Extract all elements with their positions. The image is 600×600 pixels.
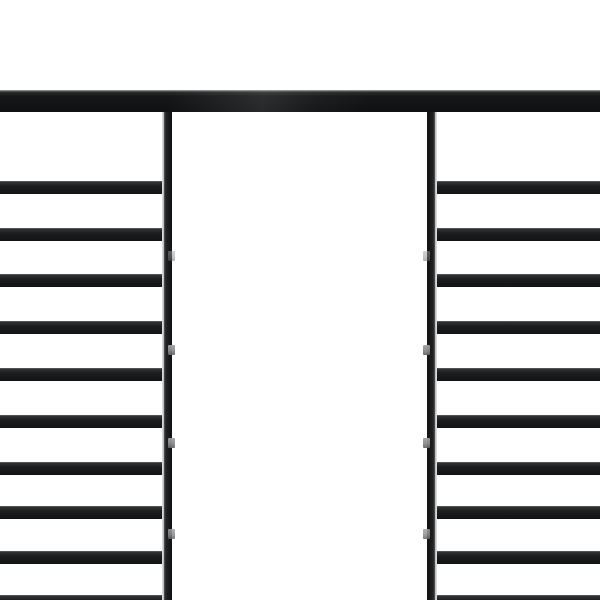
roof-slat-left xyxy=(0,368,168,381)
bracket-tab xyxy=(423,251,430,261)
roof-slat-left xyxy=(0,551,168,564)
roof-slat-left xyxy=(0,415,168,428)
roof-slat-left xyxy=(0,462,168,475)
bracket-tab xyxy=(168,529,175,539)
roof-slat-right xyxy=(430,368,600,381)
pergola-right-post xyxy=(427,112,437,600)
pergola-top-beam xyxy=(0,90,600,112)
bracket-tab xyxy=(423,529,430,539)
roof-slat-right xyxy=(430,181,600,194)
roof-slat-right xyxy=(430,274,600,287)
bracket-tab xyxy=(423,438,430,448)
bracket-tab xyxy=(168,438,175,448)
roof-slat-left xyxy=(0,506,168,519)
roof-slat-left xyxy=(0,181,168,194)
bracket-tab xyxy=(168,345,175,355)
roof-slat-right xyxy=(430,415,600,428)
roof-slat-right xyxy=(430,506,600,519)
roof-slat-right xyxy=(430,321,600,334)
roof-slat-left xyxy=(0,321,168,334)
roof-slat-left xyxy=(0,274,168,287)
pergola-product-photo xyxy=(0,0,600,600)
roof-slat-right xyxy=(430,228,600,241)
roof-slat-left xyxy=(0,228,168,241)
roof-slat-right xyxy=(430,462,600,475)
roof-slat-right xyxy=(430,595,600,600)
roof-slat-left xyxy=(0,595,168,600)
pergola-left-post xyxy=(162,112,172,600)
bracket-tab xyxy=(168,251,175,261)
roof-slat-right xyxy=(430,551,600,564)
bracket-tab xyxy=(423,345,430,355)
